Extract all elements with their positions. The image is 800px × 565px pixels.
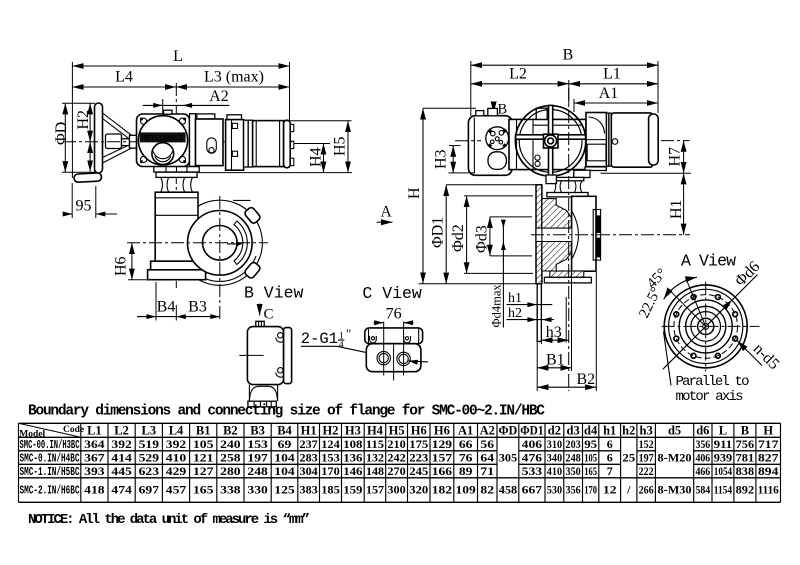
svg-text:8-M20: 8-M20 [658, 450, 692, 464]
svg-text:153: 153 [321, 450, 340, 464]
svg-text:L: L [173, 48, 183, 65]
svg-text:127: 127 [193, 464, 213, 478]
svg-text:104: 104 [274, 450, 294, 464]
svg-text:222: 222 [639, 464, 654, 478]
svg-text:474: 474 [111, 483, 131, 497]
svg-text:242: 242 [387, 450, 405, 464]
svg-text:697: 697 [139, 483, 159, 497]
svg-text:L: L [719, 424, 727, 438]
svg-text:SMC-00.IN/H3BC: SMC-00.IN/H3BC [20, 439, 80, 452]
svg-text:82: 82 [480, 483, 494, 497]
svg-text:756: 756 [736, 437, 755, 451]
svg-text:25: 25 [622, 450, 635, 464]
svg-text:115: 115 [366, 437, 384, 451]
svg-text:B: B [563, 47, 574, 64]
svg-text:410: 410 [166, 450, 186, 464]
svg-text:175: 175 [409, 437, 428, 451]
svg-text:C View: C View [362, 284, 422, 303]
svg-text:L1: L1 [87, 424, 102, 438]
svg-text:320: 320 [409, 483, 428, 497]
svg-text:76: 76 [386, 306, 402, 323]
svg-text:d4: d4 [584, 424, 598, 438]
svg-text:383: 383 [300, 483, 318, 497]
svg-text:356: 356 [566, 483, 581, 497]
svg-text:210: 210 [387, 437, 405, 451]
svg-text:d2: d2 [548, 424, 561, 438]
svg-text:h2: h2 [622, 424, 635, 438]
svg-text:h2: h2 [508, 306, 522, 321]
svg-text:418: 418 [84, 483, 104, 497]
svg-text:330: 330 [247, 483, 267, 497]
svg-text:h1: h1 [508, 291, 522, 306]
svg-text:h3: h3 [546, 324, 562, 341]
svg-text:B3: B3 [250, 424, 265, 438]
svg-text:7: 7 [607, 464, 613, 478]
svg-text:245: 245 [409, 464, 428, 478]
svg-text:197: 197 [247, 450, 267, 464]
svg-text:457: 457 [166, 483, 186, 497]
svg-text:Φd2: Φd2 [450, 224, 467, 252]
svg-text:283: 283 [300, 450, 318, 464]
svg-text:Boundary dimensions and connec: Boundary dimensions and connecting size … [28, 404, 545, 420]
svg-text:H2: H2 [323, 424, 339, 438]
svg-text:B: B [741, 424, 749, 438]
svg-text:533: 533 [522, 464, 542, 478]
svg-text:H3: H3 [345, 424, 361, 438]
svg-text:H5: H5 [389, 424, 405, 438]
svg-text:185: 185 [321, 483, 340, 497]
svg-text:223: 223 [409, 450, 428, 464]
svg-text:152: 152 [639, 437, 654, 451]
svg-text:L4: L4 [169, 424, 184, 438]
svg-text:L3: L3 [142, 424, 157, 438]
svg-text:B2: B2 [576, 371, 595, 388]
svg-text:781: 781 [736, 450, 755, 464]
svg-text:H4: H4 [308, 147, 325, 167]
svg-text:B1: B1 [546, 352, 565, 369]
svg-text:280: 280 [220, 464, 240, 478]
svg-text:L2: L2 [509, 65, 527, 82]
svg-text:H1: H1 [668, 199, 685, 219]
svg-text:SMC-0.IN/H4BC: SMC-0.IN/H4BC [20, 452, 80, 465]
svg-text:B4: B4 [157, 299, 176, 316]
svg-text:ΦD: ΦD [499, 424, 518, 438]
svg-text:64: 64 [480, 450, 494, 464]
svg-text:132: 132 [366, 450, 384, 464]
svg-text:248: 248 [247, 464, 267, 478]
svg-text:L3 (max): L3 (max) [204, 69, 264, 86]
svg-text:B View: B View [244, 284, 304, 303]
svg-text:367: 367 [84, 450, 104, 464]
svg-text:A2: A2 [209, 88, 229, 105]
svg-text:170: 170 [321, 464, 340, 478]
svg-text:L2: L2 [114, 424, 129, 438]
svg-text:H7: H7 [667, 147, 684, 167]
svg-text:A: A [381, 204, 393, 221]
svg-text:″: ″ [346, 326, 351, 341]
svg-text:892: 892 [736, 483, 755, 497]
svg-text:350: 350 [566, 464, 581, 478]
svg-text:ΦD1: ΦD1 [520, 424, 543, 438]
svg-text:1116: 1116 [758, 483, 779, 497]
svg-text:H: H [406, 187, 423, 199]
svg-text:157: 157 [366, 483, 384, 497]
svg-text:A View: A View [681, 252, 736, 271]
svg-text:B4: B4 [277, 424, 292, 438]
svg-text:153: 153 [247, 437, 267, 451]
svg-text:h3: h3 [640, 424, 653, 438]
svg-text:248: 248 [566, 450, 581, 464]
svg-text:182: 182 [432, 483, 452, 497]
svg-text:124: 124 [321, 437, 340, 451]
svg-text:NOTICE: All the data unit of m: NOTICE: All the data unit of measure is … [28, 512, 310, 528]
svg-text:d5: d5 [668, 424, 681, 438]
svg-text:H6: H6 [411, 424, 427, 438]
svg-text:717: 717 [758, 437, 778, 451]
svg-text:B1: B1 [196, 424, 211, 438]
svg-text:310: 310 [547, 437, 562, 451]
svg-text:A1: A1 [458, 424, 473, 438]
svg-text:529: 529 [139, 450, 159, 464]
svg-text:6: 6 [607, 437, 613, 451]
svg-text:H: H [763, 424, 773, 438]
svg-text:Parallel to: Parallel to [676, 374, 750, 390]
svg-text:414: 414 [111, 450, 131, 464]
svg-text:H4: H4 [367, 424, 384, 438]
svg-text:108: 108 [343, 437, 362, 451]
svg-text:4: 4 [339, 341, 344, 351]
svg-text:H1: H1 [301, 424, 317, 438]
svg-text:148: 148 [366, 464, 384, 478]
svg-text:Φd4max: Φd4max [490, 284, 504, 328]
svg-text:466: 466 [695, 464, 710, 478]
svg-text:SMC-1.IN/H5BC: SMC-1.IN/H5BC [20, 466, 80, 479]
svg-text:406: 406 [695, 450, 710, 464]
svg-text:H6: H6 [434, 424, 450, 438]
svg-text:197: 197 [639, 450, 654, 464]
svg-text:6: 6 [607, 450, 613, 464]
svg-text:1154: 1154 [714, 483, 732, 497]
svg-text:SMC-2.IN/H6BC: SMC-2.IN/H6BC [20, 485, 80, 498]
svg-text:2-G1: 2-G1 [301, 330, 338, 348]
svg-text:h1: h1 [603, 424, 616, 438]
svg-text:305: 305 [499, 450, 517, 464]
svg-text:76: 76 [459, 450, 473, 464]
svg-text:d3: d3 [567, 424, 580, 438]
svg-text:motor axis: motor axis [676, 389, 744, 405]
svg-text:939: 939 [714, 450, 732, 464]
svg-text:300: 300 [387, 483, 405, 497]
svg-text:667: 667 [522, 483, 542, 497]
svg-text:Φd3: Φd3 [474, 225, 491, 253]
svg-text:A2: A2 [480, 424, 495, 438]
svg-text:406: 406 [522, 437, 542, 451]
svg-text:237: 237 [300, 437, 318, 451]
svg-text:159: 159 [343, 483, 362, 497]
svg-text:304: 304 [300, 464, 318, 478]
svg-text:C: C [264, 307, 274, 323]
svg-text:410: 410 [547, 464, 562, 478]
svg-text:203: 203 [566, 437, 581, 451]
svg-text:/: / [626, 483, 631, 497]
svg-text:445: 445 [111, 464, 131, 478]
svg-text:B2: B2 [223, 424, 238, 438]
svg-text:129: 129 [432, 437, 452, 451]
svg-text:340: 340 [547, 450, 562, 464]
svg-text:827: 827 [758, 450, 778, 464]
svg-text:105: 105 [584, 450, 597, 464]
svg-text:165: 165 [584, 464, 597, 478]
svg-text:1054: 1054 [714, 464, 732, 478]
svg-text:623: 623 [139, 464, 159, 478]
svg-text:519: 519 [139, 437, 159, 451]
svg-text:104: 104 [274, 464, 294, 478]
svg-text:157: 157 [432, 450, 452, 464]
svg-text:476: 476 [522, 450, 542, 464]
svg-text:ΦD1: ΦD1 [430, 217, 447, 248]
svg-text:109: 109 [456, 483, 476, 497]
svg-text:69: 69 [278, 437, 292, 451]
svg-text:d6: d6 [696, 424, 709, 438]
svg-text:H2: H2 [75, 110, 92, 130]
svg-text:364: 364 [84, 437, 104, 451]
svg-text:393: 393 [84, 464, 104, 478]
svg-text:240: 240 [220, 437, 240, 451]
svg-text:894: 894 [758, 464, 778, 478]
svg-text:270: 270 [387, 464, 405, 478]
svg-text:66: 66 [459, 437, 473, 451]
svg-text:266: 266 [639, 483, 654, 497]
svg-text:71: 71 [480, 464, 494, 478]
svg-text:8-M30: 8-M30 [658, 483, 692, 497]
svg-text:B3: B3 [188, 299, 207, 316]
svg-text:584: 584 [695, 483, 710, 497]
svg-text:89: 89 [459, 464, 473, 478]
svg-text:392: 392 [166, 437, 186, 451]
svg-text:56: 56 [480, 437, 494, 451]
svg-text:530: 530 [547, 483, 562, 497]
svg-text:H5: H5 [332, 136, 349, 156]
svg-text:12: 12 [603, 483, 617, 497]
svg-text:L4: L4 [115, 69, 133, 86]
svg-text:258: 258 [220, 450, 240, 464]
svg-text:95: 95 [584, 437, 597, 451]
svg-text:125: 125 [274, 483, 294, 497]
svg-text:H6: H6 [113, 256, 130, 276]
svg-text:911: 911 [714, 437, 732, 451]
svg-text:838: 838 [736, 464, 755, 478]
svg-text:166: 166 [432, 464, 452, 478]
svg-text:A1: A1 [599, 85, 619, 102]
svg-text:L1: L1 [603, 65, 621, 82]
svg-text:Code: Code [63, 425, 84, 435]
svg-text:458: 458 [499, 483, 517, 497]
svg-text:356: 356 [695, 437, 710, 451]
svg-text:H3: H3 [433, 149, 450, 169]
svg-text:338: 338 [220, 483, 240, 497]
svg-text:136: 136 [343, 450, 362, 464]
svg-text:95: 95 [76, 198, 92, 215]
svg-text:105: 105 [193, 437, 213, 451]
svg-text:429: 429 [166, 464, 186, 478]
svg-text:170: 170 [584, 483, 597, 497]
svg-text:121: 121 [193, 450, 213, 464]
svg-text:165: 165 [193, 483, 213, 497]
svg-text:392: 392 [111, 437, 131, 451]
svg-text:146: 146 [343, 464, 362, 478]
